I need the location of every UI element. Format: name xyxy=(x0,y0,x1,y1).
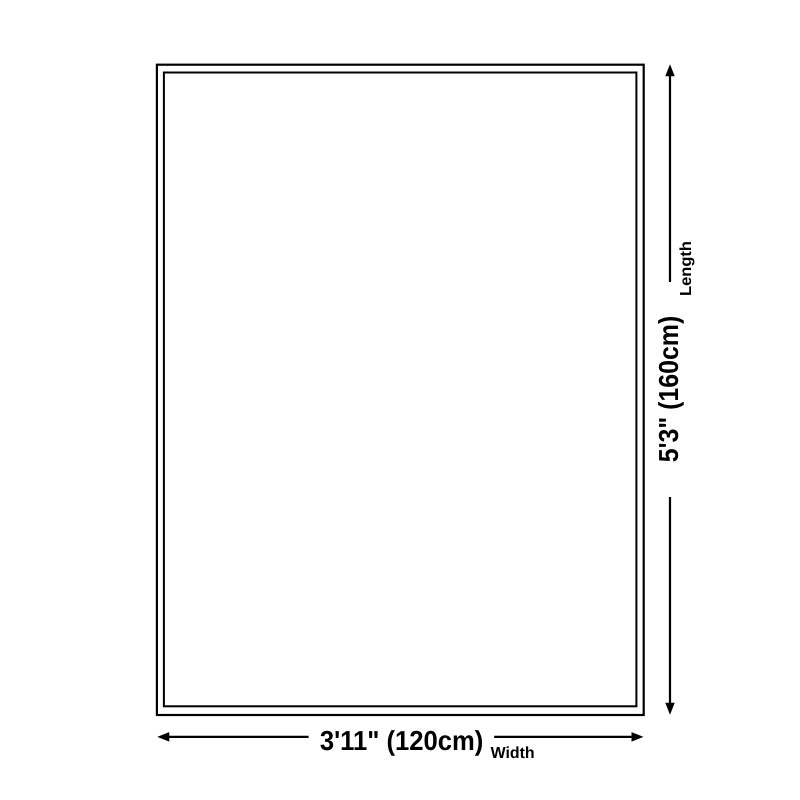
svg-text:Width: Width xyxy=(491,745,535,762)
svg-text:3'11" (120cm): 3'11" (120cm) xyxy=(320,725,484,756)
svg-text:5'3" (160cm): 5'3" (160cm) xyxy=(653,316,684,463)
svg-text:Length: Length xyxy=(678,241,695,296)
